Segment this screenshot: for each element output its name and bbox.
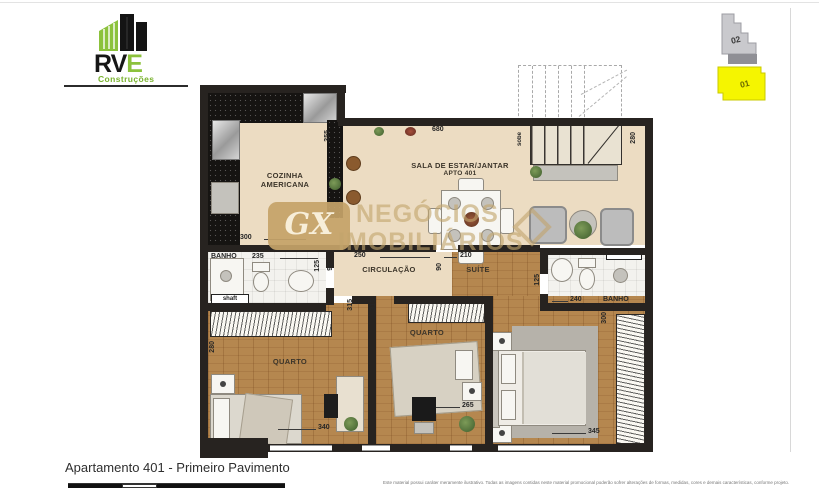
pillow-bedroom1 (213, 398, 230, 440)
sink-left (288, 270, 314, 292)
toilet-bowl-left (253, 272, 269, 292)
blanket-suite (522, 352, 586, 424)
scalebar-segment (68, 484, 122, 488)
window-suite (498, 445, 590, 451)
dim-living-height: 280 (630, 132, 637, 144)
toilet-tank-right (578, 258, 596, 268)
bar-plant (329, 178, 341, 190)
watermark-line2: IMOBILIÁRIOS (338, 228, 524, 257)
dashed-tread (545, 66, 546, 122)
dim-bedroom1-width: 340 (318, 424, 330, 431)
dim-kitchen-height: 355 (324, 130, 331, 142)
wardrobe-bedroom1 (210, 311, 332, 337)
dim-bath-right-width: 240 (570, 296, 582, 303)
lamp-dot (220, 381, 226, 387)
room-label-bath-left: BANHO (211, 253, 237, 260)
dim-suite-side: 300 (601, 312, 608, 324)
dashed-tread (571, 66, 572, 122)
desk-chair-bedroom1 (324, 394, 338, 418)
room-label-bath-right: BANHO (603, 296, 629, 303)
dim-hall-height-left: 90 (327, 263, 334, 271)
wall-hall-bottom (394, 296, 485, 304)
lamp-dot (469, 388, 475, 394)
wall-right (645, 118, 653, 452)
dim-door-left: 315 (347, 299, 354, 311)
room-label-hall: CIRCULAÇÃO (336, 265, 442, 274)
dim-suite-bottom: 345 (588, 428, 600, 435)
armchair (600, 208, 634, 246)
wall-kitchen-right (337, 93, 345, 122)
wardrobe-suite (616, 314, 645, 444)
logo-underline (64, 85, 188, 87)
plan-title: Apartamento 401 - Primeiro Pavimento (65, 460, 290, 475)
room-label-living: SALA DE ESTAR/JANTAR (385, 161, 535, 170)
kitchen-counter-top (208, 93, 310, 123)
dim-hall-height-right: 90 (436, 263, 443, 271)
lamp-dot (499, 430, 505, 436)
decor-plant (374, 127, 384, 136)
stairs-landing (590, 122, 622, 165)
stairs-direction-label: sobe (517, 132, 523, 146)
kitchen-stove (211, 182, 239, 214)
shower-head-left (220, 270, 232, 282)
dim-line (280, 258, 318, 259)
dim-line (380, 257, 430, 258)
window-bedroom1 (270, 445, 332, 451)
dim-bedroom2-width: 265 (462, 402, 474, 409)
wall-bedroom2-suite (485, 296, 493, 452)
pillow-suite (501, 390, 516, 420)
dim-bedroom1-height: 280 (209, 341, 216, 353)
dashed-tread (584, 66, 585, 122)
rve-logo-buildings-icon (98, 13, 156, 51)
room-label-bedroom2: QUARTO (392, 328, 462, 337)
stairs-treads (530, 122, 590, 165)
wall-bath-right-bottom (548, 303, 653, 311)
scalebar-segment (157, 484, 285, 488)
dashed-tread (558, 66, 559, 122)
kitchen-label-line1: COZINHA (240, 171, 330, 180)
top-border-line (0, 2, 819, 3)
room-label-kitchen: COZINHA AMERICANA (240, 171, 330, 189)
right-border-line (790, 8, 791, 452)
sideboard (533, 165, 618, 181)
wall-kitchen-top (200, 85, 346, 93)
wall-bath-left-east (326, 288, 334, 305)
bar-stool (346, 156, 361, 171)
plant-bedroom1 (344, 417, 358, 431)
side-table-plant (574, 221, 592, 239)
toilet-bowl-right (579, 268, 595, 290)
dim-living-width: 680 (432, 126, 444, 133)
scalebar-segment (122, 484, 157, 488)
watermark-line1: NEGÓCIOS (356, 200, 499, 229)
floor-hall (334, 252, 452, 296)
stairs-upper-flight-dashed (518, 65, 622, 121)
pillow-bedroom2 (455, 350, 473, 380)
toilet-tank-left (252, 262, 270, 272)
floorplan-page: RVE Construções 02 01 (0, 0, 819, 490)
wall-bath-right-west (540, 294, 548, 311)
dim-bath-left-height: 125 (314, 260, 321, 272)
dim-bath-left-width: 235 (252, 253, 264, 260)
dim-line (444, 257, 457, 258)
window-bedroom1-side (362, 445, 390, 451)
kitchen-fridge (303, 93, 337, 123)
disclaimer-text: Este material possui caráter meramente i… (383, 480, 753, 485)
drain-right (613, 268, 628, 283)
pillow-suite (501, 354, 516, 384)
wall-bath-left-bottom (208, 303, 326, 311)
window-bedroom2 (450, 445, 472, 451)
decor-flowers (405, 127, 416, 136)
kitchen-label-line2: AMERICANA (240, 180, 330, 189)
dim-line (436, 407, 460, 408)
room-label-bedroom1: QUARTO (250, 357, 330, 366)
logo-subtitle: Construções (98, 74, 154, 84)
wall-bath-right-top (540, 248, 645, 255)
dim-door-right: 315 (370, 299, 377, 311)
dim-line (278, 429, 316, 430)
wall-bath-right-west (540, 248, 548, 274)
sink-right (551, 258, 573, 282)
wall-bedroom1-bedroom2 (368, 296, 376, 452)
floor-level-indicator: 02 01 (714, 12, 778, 104)
tv-panel-bedroom2 (412, 397, 436, 421)
dim-bath-right-height: 125 (534, 274, 541, 286)
room-label-suite: SUÍTE (450, 265, 506, 274)
dashed-tread (532, 66, 533, 122)
lamp-dot (499, 338, 505, 344)
dim-line (552, 433, 586, 434)
room-label-living-sub: APTO 401 (385, 170, 535, 177)
tv-stand-bedroom2 (414, 422, 434, 434)
dim-line (552, 301, 568, 302)
exterior-slab (202, 438, 268, 458)
wall-left (200, 85, 208, 458)
kitchen-sink (212, 120, 240, 160)
wall-living-top (338, 118, 653, 126)
dim-kitchen-width: 300 (240, 234, 252, 241)
plant-bedroom2 (459, 416, 475, 432)
